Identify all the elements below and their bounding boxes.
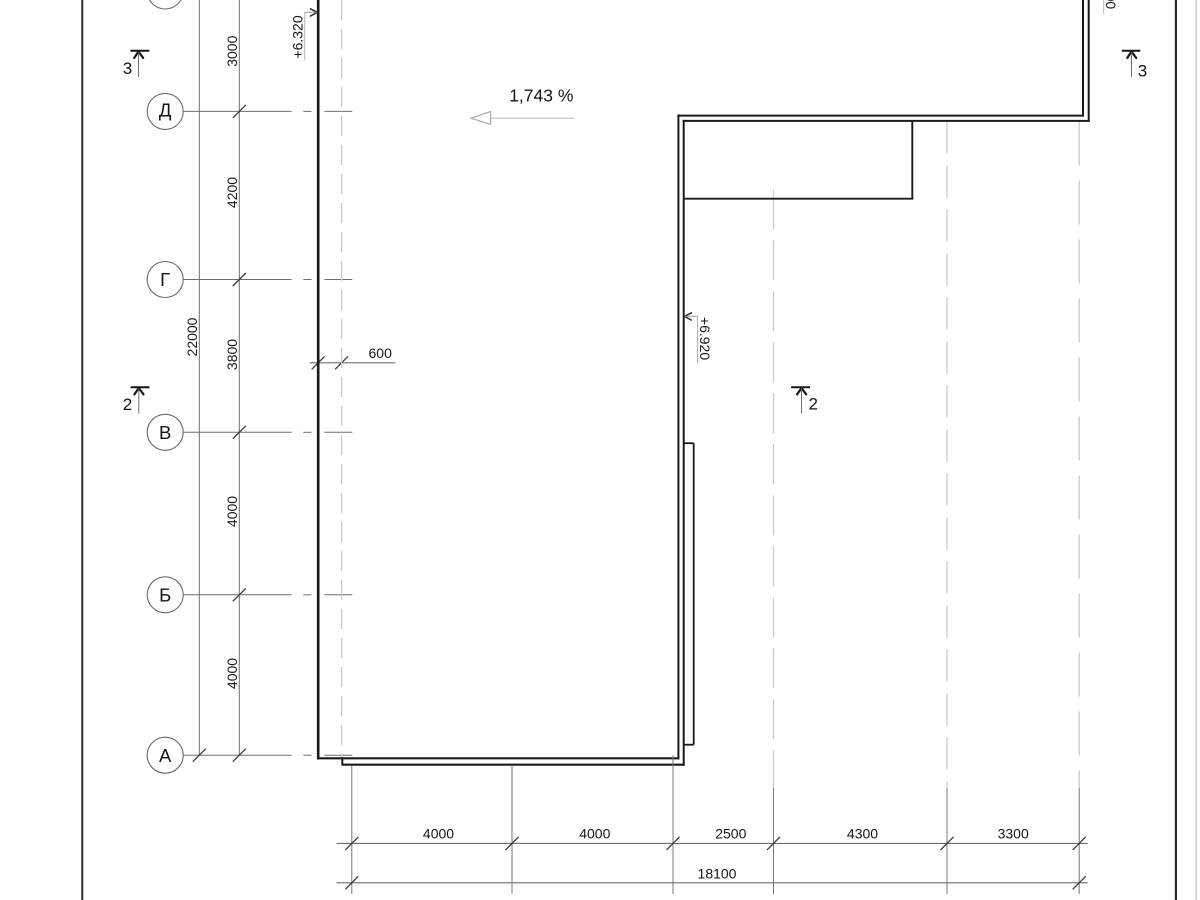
svg-text:2: 2 [123,395,132,414]
svg-text:4300: 4300 [847,826,878,842]
svg-text:600: 600 [369,345,393,361]
svg-text:3000: 3000 [224,35,240,66]
svg-text:+6.900: +6.900 [1103,0,1119,9]
svg-text:4000: 4000 [579,826,610,842]
svg-text:А: А [159,745,172,766]
svg-text:4000: 4000 [224,658,240,689]
svg-text:4200: 4200 [224,177,240,208]
svg-text:3: 3 [123,59,132,78]
svg-text:3: 3 [1138,62,1147,81]
svg-text:4000: 4000 [423,826,454,842]
svg-text:Д: Д [159,100,172,121]
svg-text:1,743 %: 1,743 % [509,86,573,106]
svg-text:Г: Г [160,269,170,290]
svg-text:4000: 4000 [224,496,240,527]
svg-text:18100: 18100 [698,866,737,882]
svg-text:2: 2 [808,395,817,414]
svg-text:3800: 3800 [224,339,240,370]
svg-text:В: В [159,422,171,443]
svg-text:+6.320: +6.320 [289,15,305,58]
svg-text:+6.920: +6.920 [697,317,713,360]
svg-text:2500: 2500 [715,826,746,842]
svg-text:22000: 22000 [184,317,200,356]
svg-text:3300: 3300 [998,826,1029,842]
svg-text:Б: Б [159,585,171,606]
